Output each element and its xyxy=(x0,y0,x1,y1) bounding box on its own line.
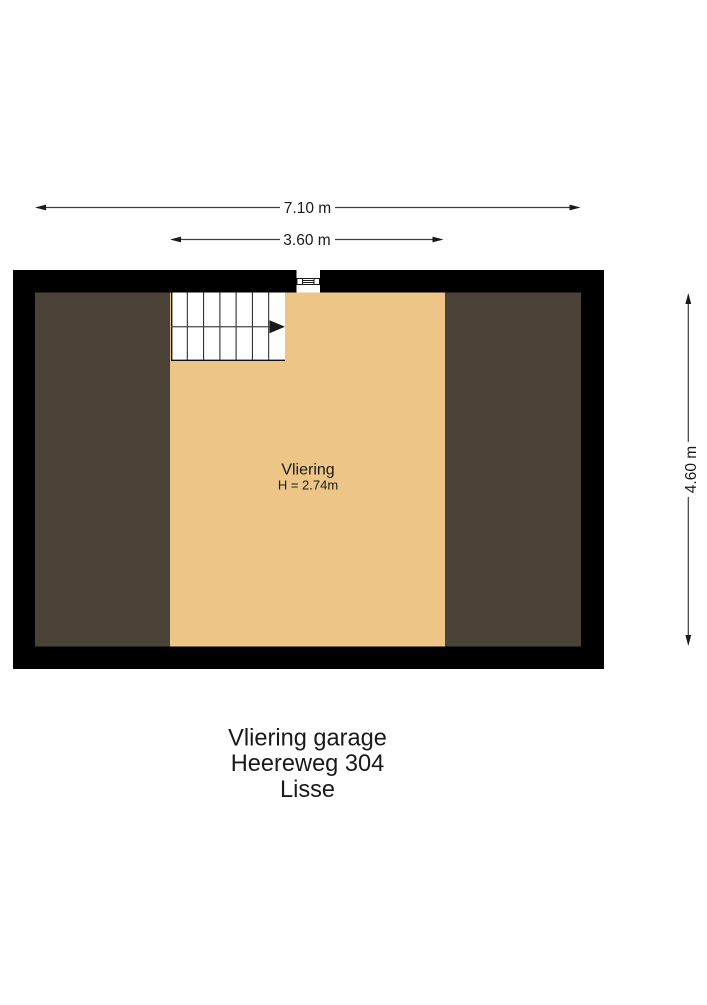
svg-text:3.60 m: 3.60 m xyxy=(283,232,330,249)
svg-text:H = 2.74m: H = 2.74m xyxy=(278,478,338,493)
svg-text:Heereweg 304: Heereweg 304 xyxy=(231,751,384,777)
svg-text:Vliering garage: Vliering garage xyxy=(228,726,387,752)
svg-text:7.10 m: 7.10 m xyxy=(284,200,331,217)
svg-text:Vliering: Vliering xyxy=(281,462,334,479)
svg-text:Lisse: Lisse xyxy=(280,777,335,803)
svg-text:4.60 m: 4.60 m xyxy=(683,446,700,493)
